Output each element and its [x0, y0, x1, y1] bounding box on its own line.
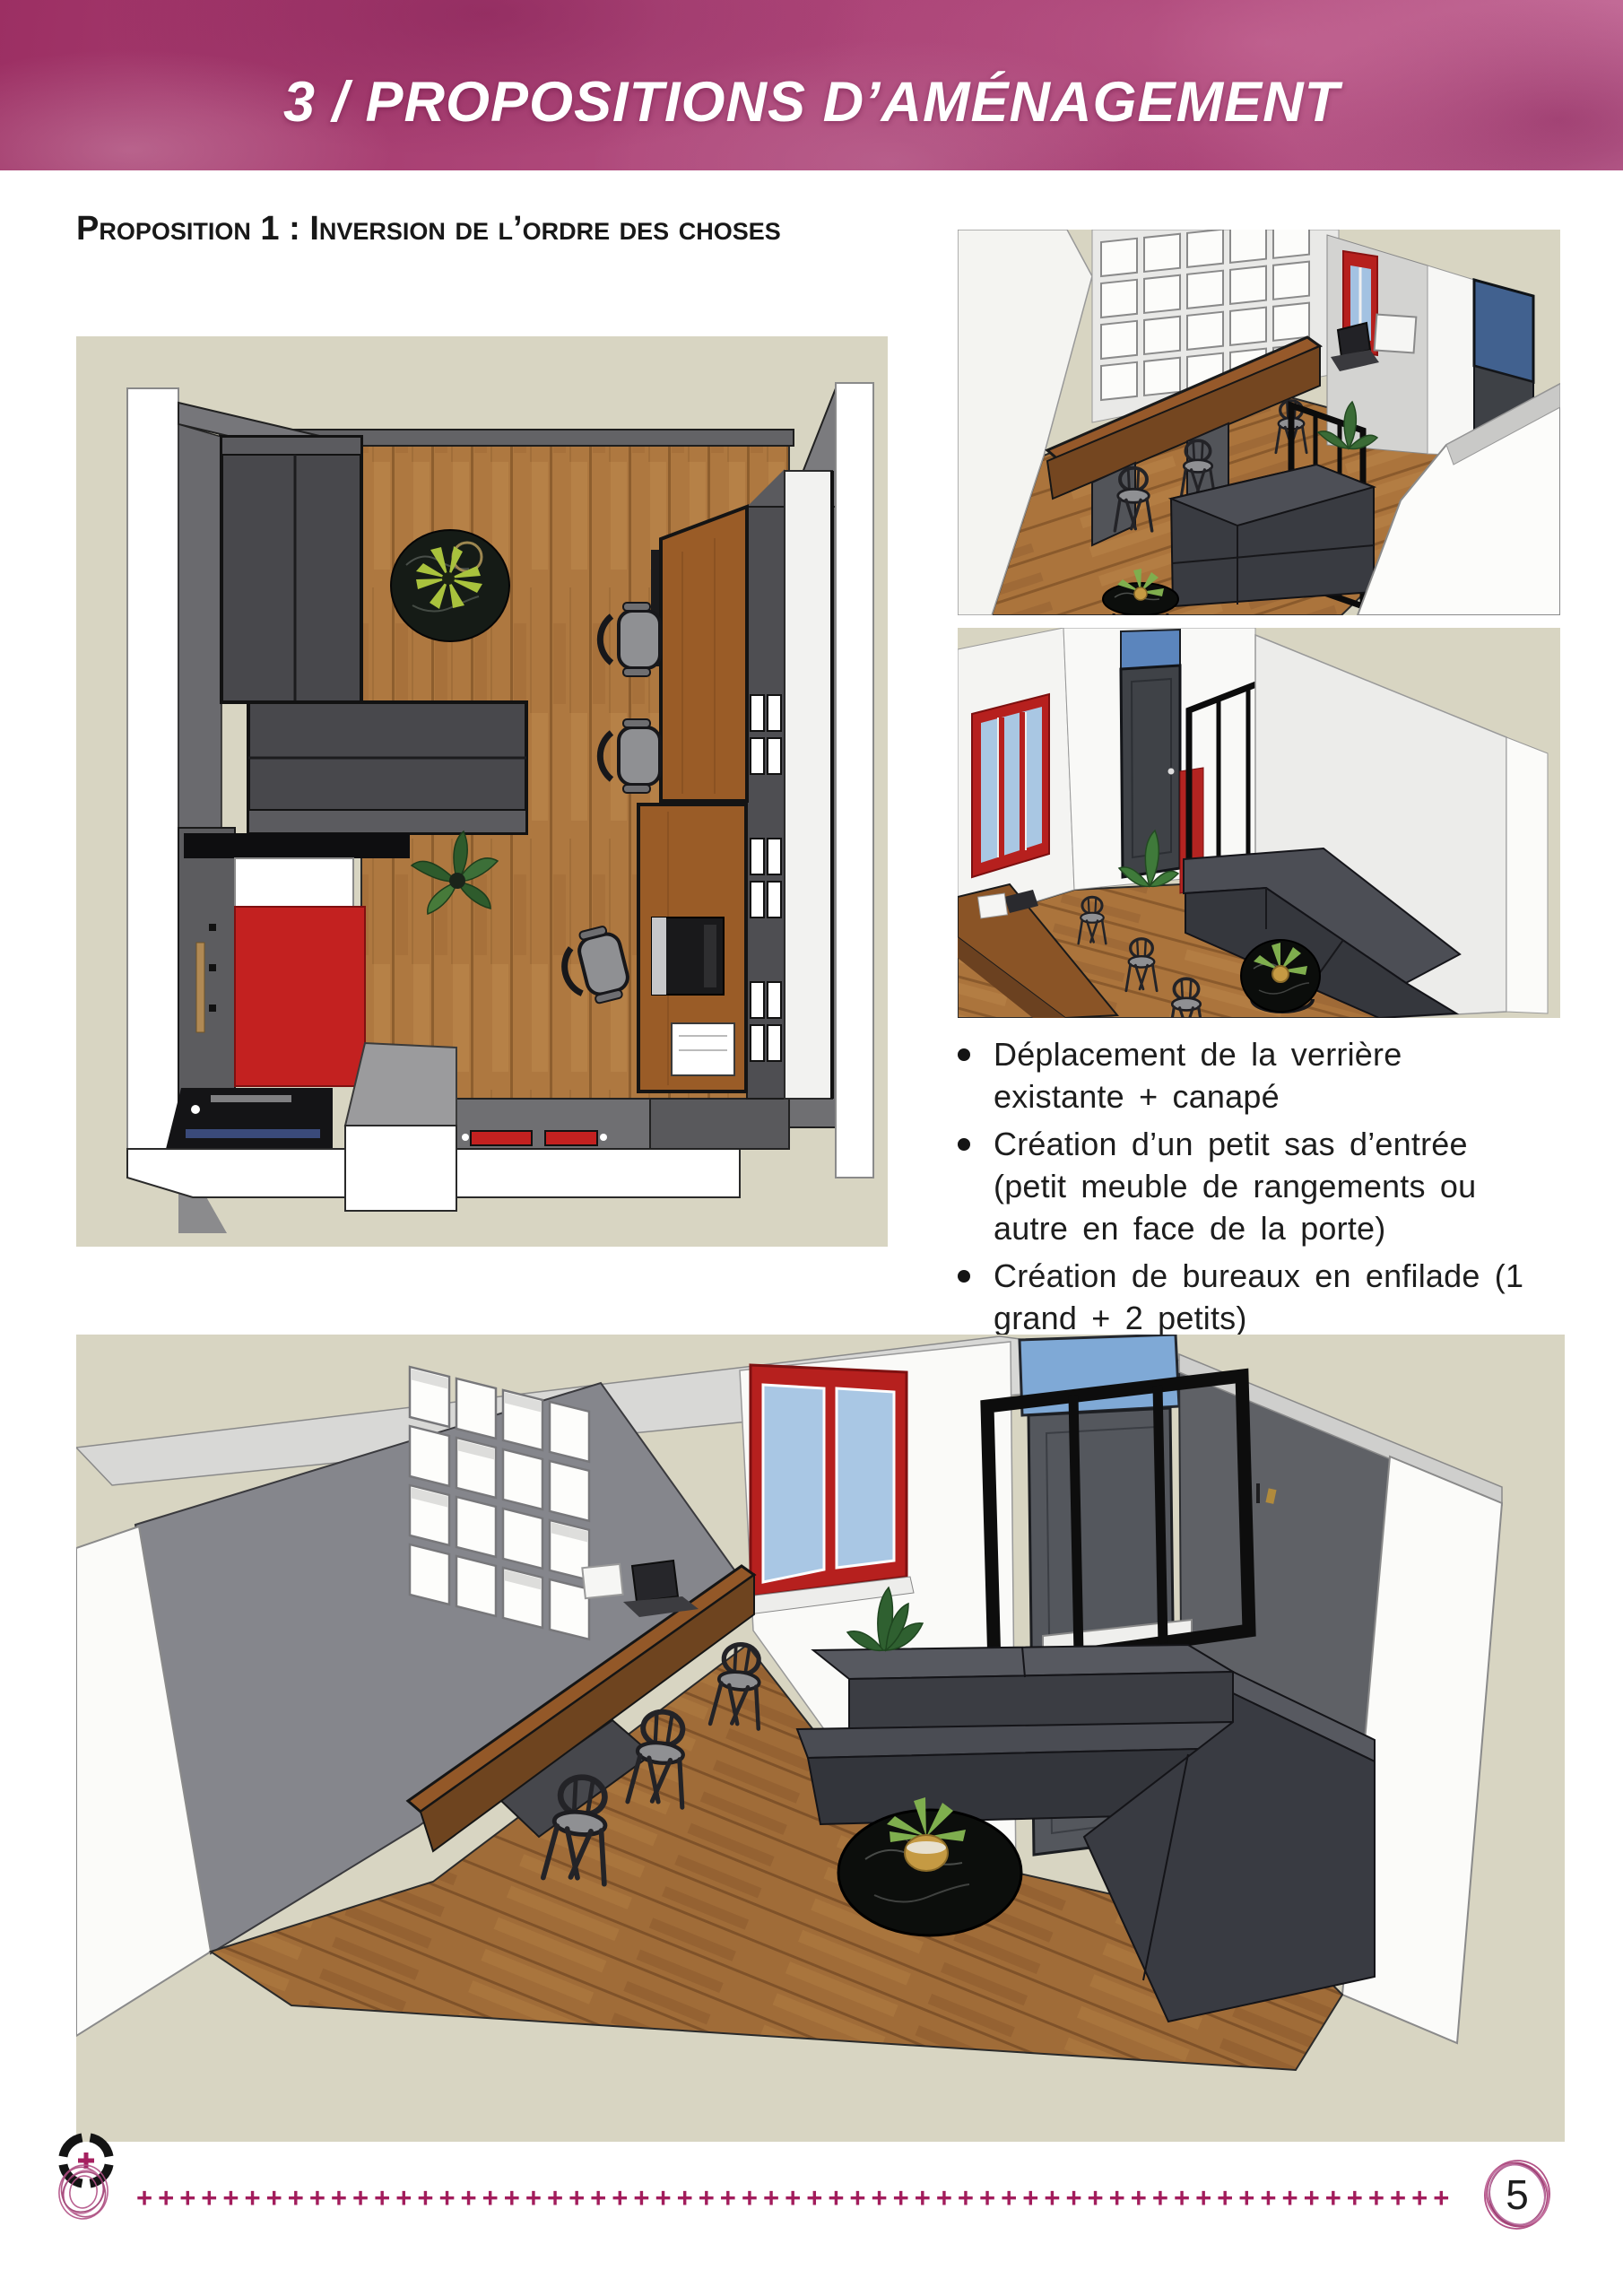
figure-perspective-2: [958, 628, 1560, 1018]
bullet-dot: [958, 1138, 970, 1151]
perspective-1-illustration: [958, 230, 1560, 615]
page-number: 5: [1506, 2171, 1529, 2218]
figure-perspective-1: [958, 230, 1560, 615]
plan-view-illustration: [76, 336, 888, 1247]
section-heading: Proposition 1 : Inversion de l’ordre des…: [76, 210, 781, 248]
bullet-text: Déplacement de la verrière existante + c…: [994, 1033, 1402, 1118]
bullet-dot: [958, 1048, 970, 1061]
bullet-dot: [958, 1270, 970, 1283]
perspective-2-illustration: [958, 628, 1560, 1018]
figure-plan-view: [76, 336, 888, 1247]
page-number-badge: 5: [1476, 2154, 1558, 2237]
bullet-text: Création de bureaux en enfilade (1 grand…: [994, 1255, 1523, 1339]
page-title: 3 / PROPOSITIONS D’AMÉNAGEMENT: [283, 36, 1340, 135]
studio-logo-icon: [52, 2133, 122, 2233]
bullet-item: Création d’un petit sas d’entrée (petit …: [958, 1123, 1585, 1249]
header-band: 3 / PROPOSITIONS D’AMÉNAGEMENT: [0, 0, 1623, 170]
bullet-item: Déplacement de la verrière existante + c…: [958, 1033, 1585, 1118]
perspective-main-illustration: [76, 1335, 1565, 2142]
bullet-text: Création d’un petit sas d’entrée (petit …: [994, 1123, 1476, 1249]
figure-perspective-main: [76, 1335, 1565, 2142]
bullet-list: Déplacement de la verrière existante + c…: [958, 1033, 1585, 1344]
bullet-item: Création de bureaux en enfilade (1 grand…: [958, 1255, 1585, 1339]
plus-divider: ++++++++++++++++++++++++++++++++++++++++…: [136, 2179, 1463, 2218]
